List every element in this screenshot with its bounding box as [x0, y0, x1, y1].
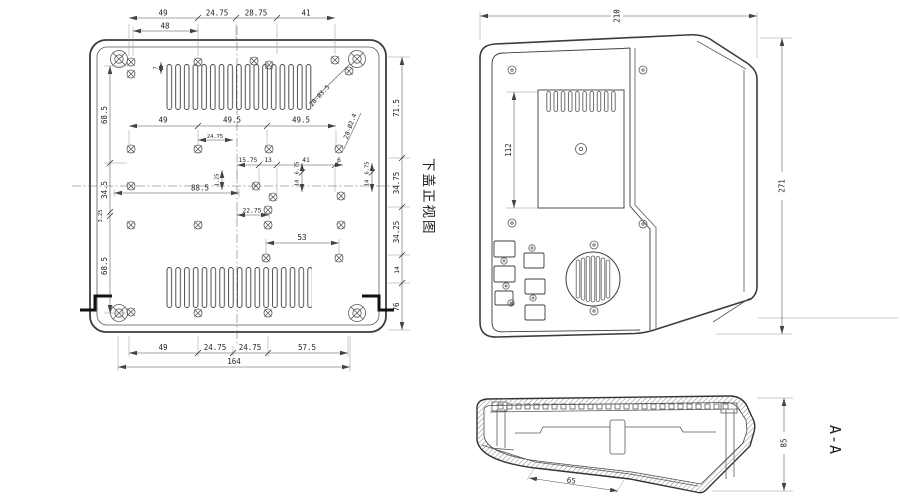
dim-label: 13: [264, 157, 272, 164]
dim-label-width: 210: [613, 9, 622, 23]
dim-label: 24.75: [204, 343, 227, 352]
front-button-screws: [501, 245, 536, 306]
section-view: 85 65 A-A: [477, 396, 844, 493]
dim-label: 34.5: [100, 181, 109, 199]
dim-label: 6.75: [295, 162, 301, 175]
dim-label: 14: [365, 180, 371, 187]
dim-label-screen: 112: [504, 143, 513, 157]
hole-callout: 28-Ø2.4: [342, 112, 359, 140]
dim-label: 1.25: [215, 174, 221, 187]
bottom-cover-view: 49 24.75 28.75 41 48 49 49.5 49.5 24.75 …: [72, 9, 436, 372]
section-label: A-A: [826, 425, 844, 455]
cover-vent-grille-top: [165, 64, 312, 110]
view-title-bottom-cover: 下盖正视图: [420, 158, 436, 236]
screen-recess: [538, 90, 624, 208]
front-outline: [480, 35, 757, 337]
dim-label: 34.25: [392, 221, 401, 244]
front-dimensions: 210 271 112: [480, 3, 898, 334]
dim-label: 34.75: [392, 172, 401, 195]
dim-label: 48: [160, 22, 170, 31]
dim-label: 24.75: [206, 9, 229, 18]
dim-label: 49: [158, 9, 167, 18]
dim-label: 24.75: [207, 134, 223, 140]
dim-label: 49.5: [223, 116, 241, 125]
dim-label: 7: [154, 66, 160, 69]
dim-label: 22.75: [243, 207, 262, 214]
dim-label: 76: [392, 302, 401, 312]
dim-label: 3.25: [98, 210, 104, 223]
dim-label: 24.75: [239, 343, 262, 352]
dim-label: 6: [337, 157, 341, 164]
dim-label: 68.5: [100, 106, 109, 124]
dim-label: 15.75: [239, 157, 258, 164]
dim-label: 53: [297, 233, 306, 242]
cover-vent-grille-bottom: [165, 267, 312, 308]
dim-label: 49: [158, 343, 167, 352]
dim-label: 68.5: [100, 257, 109, 275]
dim-label-height: 271: [778, 179, 787, 193]
dim-label: 14: [295, 180, 301, 187]
screen-center-screw: [576, 144, 587, 155]
dim-label: 6.75: [365, 162, 371, 175]
speaker-grille: [566, 252, 620, 306]
front-buttons: [494, 241, 545, 320]
dim-label: 57.5: [298, 343, 316, 352]
screen-vent-slots: [545, 91, 617, 112]
dim-label-section-slant: 65: [566, 475, 576, 485]
dim-label: 14: [394, 266, 401, 274]
dim-label: 49: [158, 116, 167, 125]
dim-label: 164: [227, 357, 241, 366]
dim-label: 28.75: [245, 9, 268, 18]
dim-label: 41: [302, 157, 310, 164]
drawing-canvas: 49 24.75 28.75 41 48 49 49.5 49.5 24.75 …: [0, 0, 900, 500]
dim-label: 71.5: [392, 99, 401, 117]
dim-label: 49.5: [292, 116, 310, 125]
dim-label-section-height: 85: [780, 438, 789, 447]
dim-label: 88.5: [191, 184, 209, 193]
front-view: 210 271 112: [480, 3, 898, 337]
dim-label: 41: [301, 9, 310, 18]
engineering-drawing-page: 49 24.75 28.75 41 48 49 49.5 49.5 24.75 …: [0, 0, 900, 500]
